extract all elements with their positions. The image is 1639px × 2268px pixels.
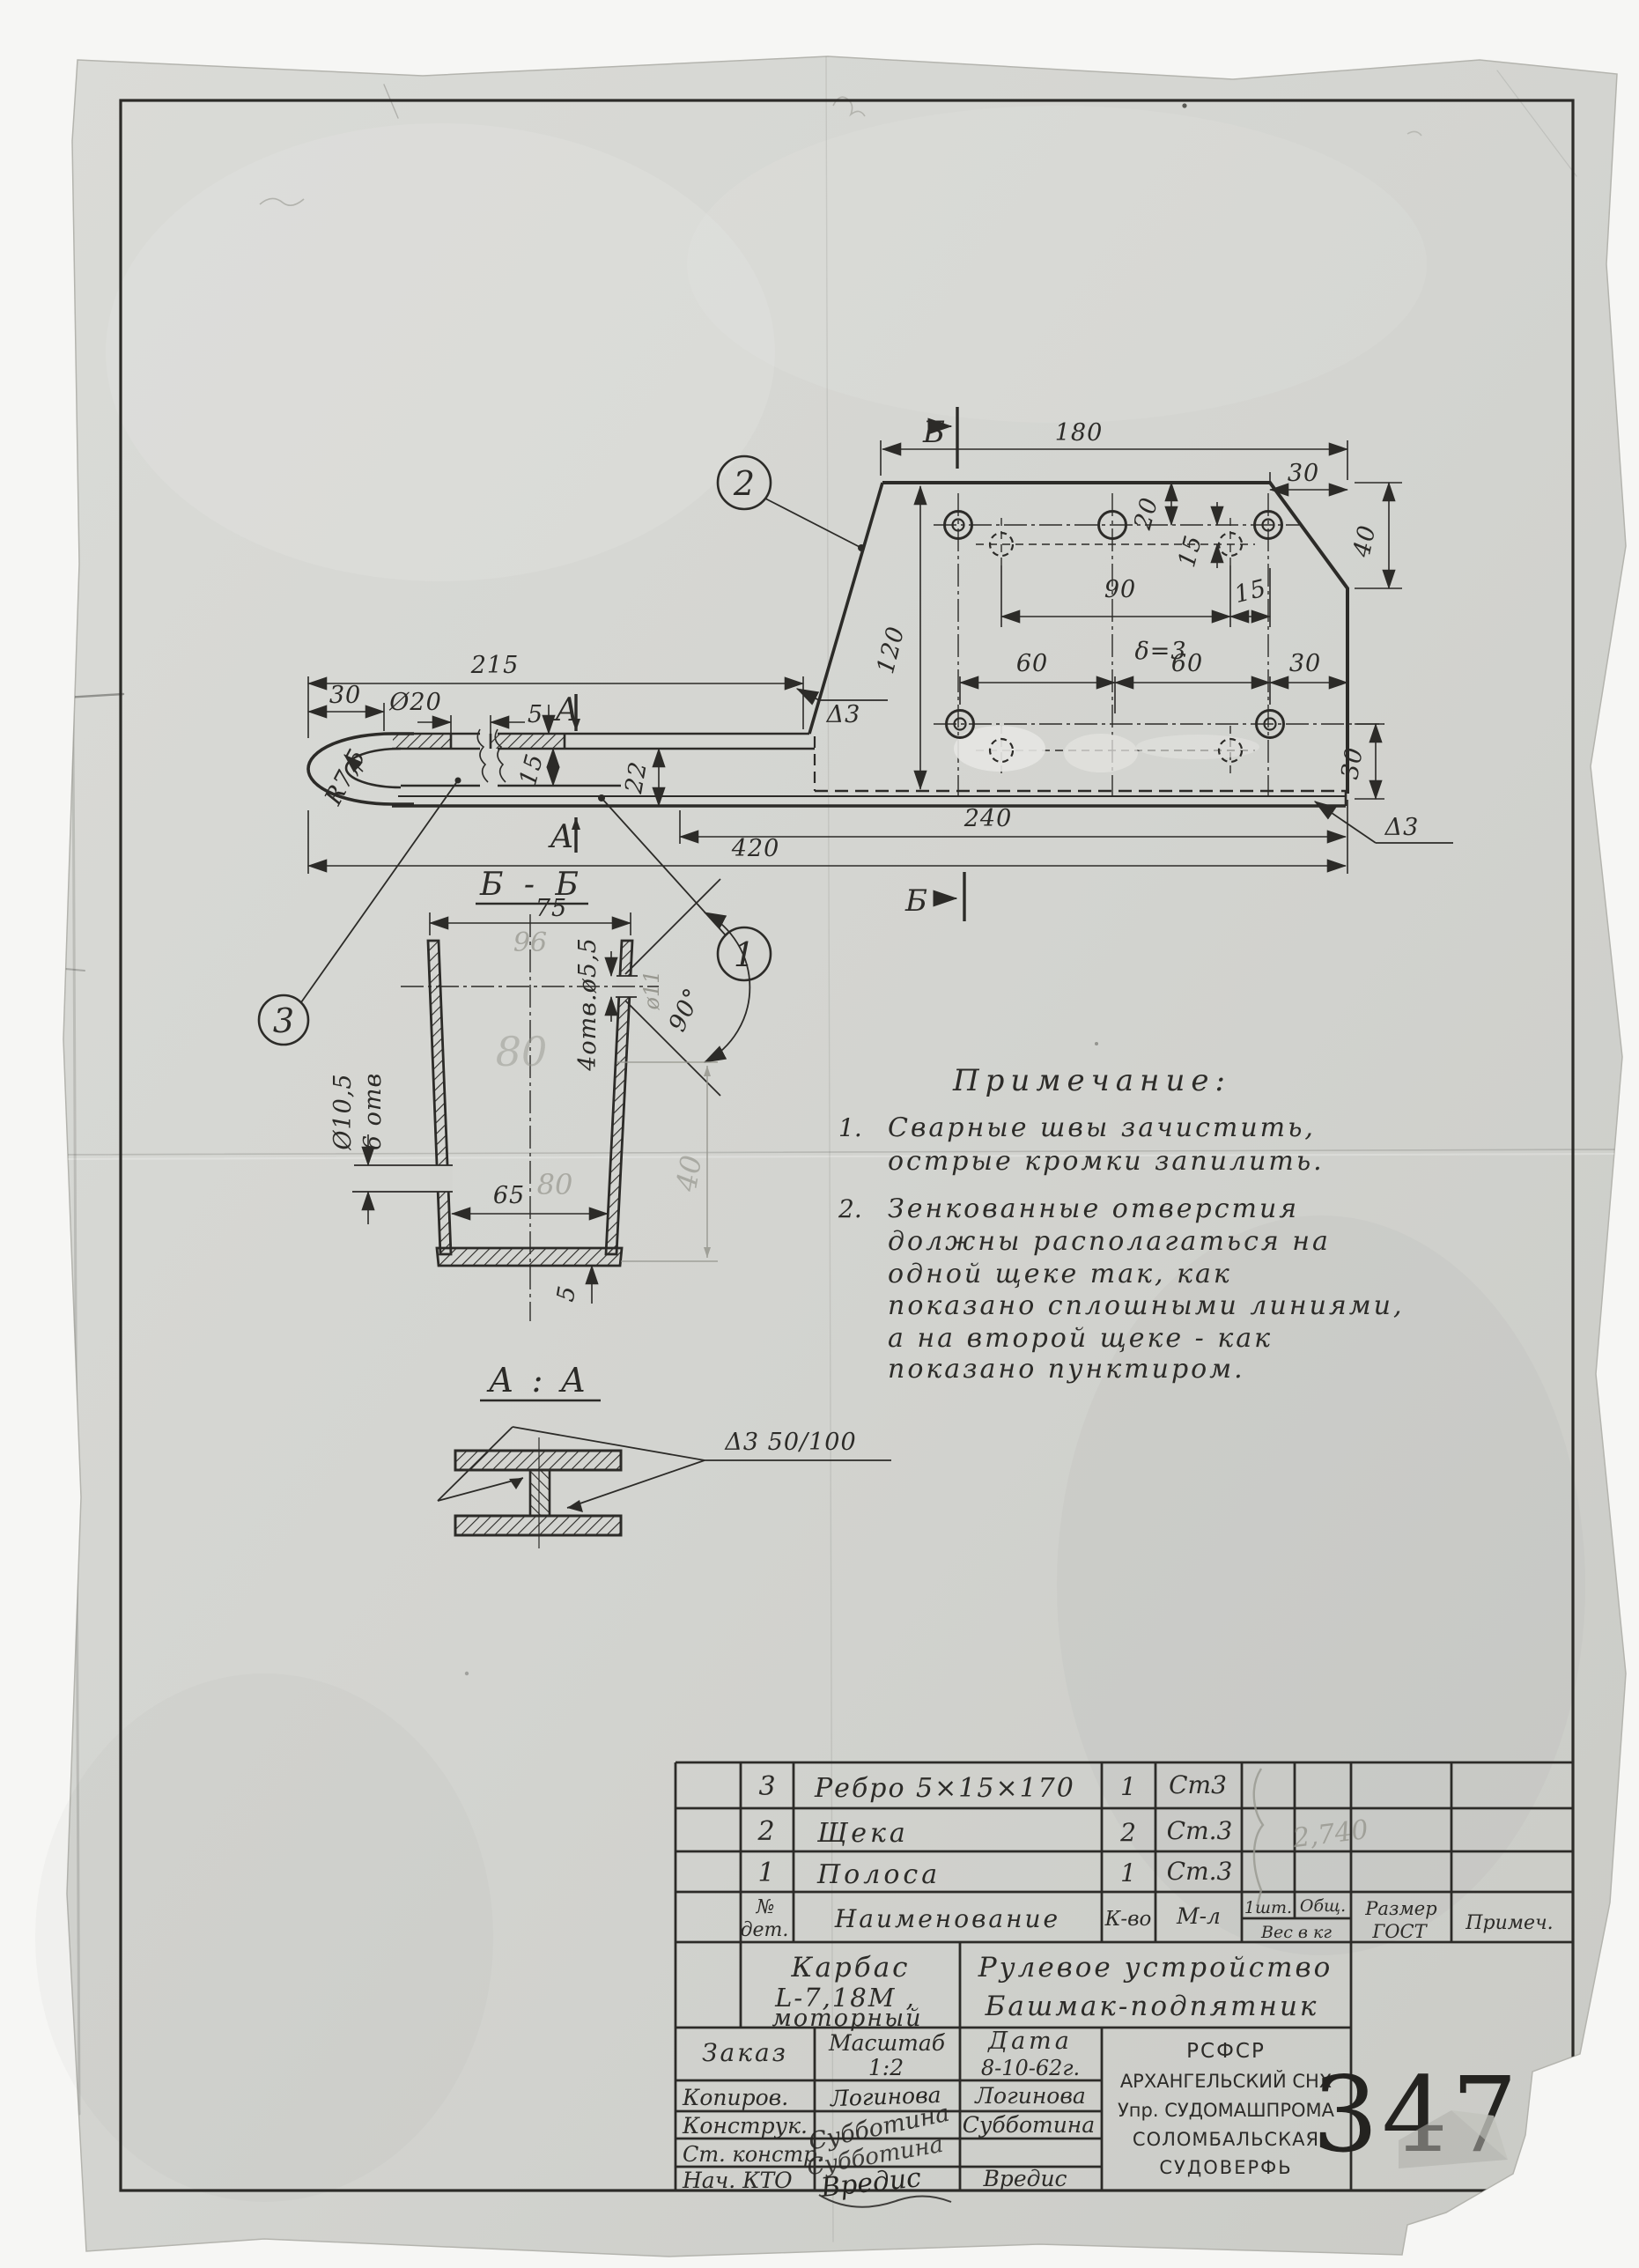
blueprint-svg: 180 Б Б 30 40 20 15 90 15 δ=3 120 60 60 …	[0, 0, 1639, 2268]
name-cell: Вредис	[982, 2166, 1067, 2191]
callout-3: 3	[273, 1001, 294, 1040]
svg-text:Копиров.: Копиров.	[682, 2085, 788, 2110]
pencil-note: 80	[496, 1028, 548, 1075]
svg-text:5: 5	[528, 701, 543, 728]
svg-text:Примеч.: Примеч.	[1465, 1912, 1553, 1934]
part-material: Ст.3	[1167, 1857, 1233, 1886]
svg-text:60: 60	[1171, 650, 1203, 677]
svg-text:240: 240	[963, 805, 1013, 832]
svg-text:М-л: М-л	[1176, 1903, 1221, 1929]
dim-label: 180	[1055, 419, 1104, 447]
svg-text:Дата: Дата	[987, 2028, 1073, 2055]
svg-text:6 отв: 6 отв	[359, 1073, 387, 1150]
part-name: Ребро 5×15×170	[814, 1773, 1075, 1804]
svg-text:Зенкованные отверстия: Зенкованные отверстия	[888, 1193, 1299, 1224]
name-cell: Логинова	[973, 2083, 1086, 2109]
weld-note: Δ3 50/100	[724, 1429, 856, 1456]
svg-text:Ø20: Ø20	[388, 689, 442, 716]
notes-title: Примечание:	[952, 1063, 1231, 1098]
svg-text:Масштаб: Масштаб	[828, 2030, 946, 2056]
part-name: Полоса	[816, 1859, 941, 1890]
svg-text:Размер: Размер	[1364, 1898, 1436, 1919]
section-letter-b-bottom: Б	[904, 883, 927, 919]
org-line: СОЛОМБАЛЬСКАЯ	[1133, 2129, 1319, 2150]
org-line: РСФСР	[1186, 2040, 1266, 2063]
svg-text:Конструк.: Конструк.	[682, 2113, 808, 2139]
section-bb-title: Б - Б	[479, 867, 584, 903]
part-qty: 2	[1119, 1818, 1136, 1847]
section-letter-b-top: Б	[922, 415, 945, 450]
weld-symbol: Δ3	[1384, 814, 1420, 841]
svg-text:Наименование: Наименование	[834, 1904, 1060, 1933]
section-letter-a-bottom: А	[547, 819, 573, 855]
svg-text:30: 30	[1289, 650, 1321, 677]
svg-text:75: 75	[535, 895, 567, 922]
weld-symbol: Δ3	[826, 701, 861, 728]
svg-text:одной щеке так, как: одной щеке так, как	[888, 1259, 1232, 1289]
pencil-note: ø11	[639, 971, 664, 1011]
svg-text:К-во: К-во	[1104, 1908, 1152, 1931]
part-qty: 1	[1120, 1772, 1136, 1801]
svg-text:Заказ: Заказ	[702, 2038, 788, 2067]
name-cell: Субботина	[963, 2112, 1095, 2138]
svg-text:дет.: дет.	[741, 1919, 789, 1941]
svg-text:№: №	[756, 1896, 775, 1918]
part-no: 2	[757, 1816, 774, 1847]
pencil-note: 40	[669, 1153, 709, 1195]
svg-text:30: 30	[1336, 745, 1369, 781]
svg-text:8-10-62г.: 8-10-62г.	[981, 2056, 1080, 2080]
product-line: Карбас	[790, 1952, 910, 1984]
note-1-num: 1.	[838, 1113, 862, 1142]
org-line: СУДОВЕРФЬ	[1159, 2157, 1292, 2178]
svg-text:65: 65	[493, 1182, 525, 1209]
svg-text:а на второй щеке - как: а на второй щеке - как	[888, 1323, 1273, 1354]
svg-text:показано пунктиром.: показано пунктиром.	[888, 1354, 1245, 1385]
svg-text:Общ.: Общ.	[1300, 1896, 1346, 1916]
svg-text:ГОСТ: ГОСТ	[1371, 1921, 1428, 1942]
org-line: АРХАНГЕЛЬСКИЙ СНХ	[1120, 2070, 1332, 2092]
svg-text:должны располагаться на: должны располагаться на	[888, 1226, 1331, 1257]
svg-text:420: 420	[731, 835, 780, 862]
svg-text:60: 60	[1016, 650, 1048, 677]
scanned-blueprint-sheet: 180 Б Б 30 40 20 15 90 15 δ=3 120 60 60 …	[0, 0, 1639, 2268]
svg-text:острые кромки запилить.: острые кромки запилить.	[888, 1146, 1325, 1177]
svg-text:Вес в кг: Вес в кг	[1260, 1923, 1332, 1942]
product-line: моторный	[772, 2005, 923, 2032]
svg-text:Ø10,5: Ø10,5	[329, 1073, 357, 1150]
org-line: Упр. СУДОМАШПРОМА	[1118, 2100, 1335, 2121]
svg-text:показано сплошными линиями,: показано сплошными линиями,	[888, 1290, 1405, 1321]
part-name: Щека	[816, 1818, 909, 1849]
svg-text:4отв.ø5,5: 4отв.ø5,5	[574, 937, 602, 1072]
part-qty: 1	[1120, 1858, 1136, 1888]
pencil-note: 96	[513, 927, 547, 958]
part-material: Ст3	[1169, 1770, 1227, 1799]
svg-text:30: 30	[1288, 460, 1319, 487]
section-letter-a-top: А	[552, 692, 579, 728]
svg-text:1шт.: 1шт.	[1244, 1898, 1292, 1917]
svg-text:Ст. констр.: Ст. констр.	[683, 2142, 823, 2167]
svg-text:1:2: 1:2	[868, 2055, 904, 2080]
note-2-num: 2.	[838, 1194, 862, 1223]
drawing-title: Рулевое устройство	[978, 1952, 1333, 1984]
part-material: Ст.3	[1167, 1816, 1233, 1845]
svg-text:Сварные швы зачистить,: Сварные швы зачистить,	[888, 1112, 1316, 1143]
svg-text:Нач. КТО: Нач. КТО	[682, 2168, 793, 2193]
svg-text:30: 30	[329, 682, 361, 709]
svg-text:22: 22	[620, 759, 653, 796]
part-no: 1	[757, 1858, 774, 1888]
svg-text:215: 215	[470, 652, 520, 679]
part-no: 3	[758, 1771, 775, 1802]
section-aa-title: А : А	[486, 1361, 590, 1400]
drawing-title: Башмак-подпятник	[985, 1991, 1319, 2022]
svg-text:90: 90	[1104, 576, 1136, 603]
pencil-note: 80	[537, 1168, 573, 1201]
callout-2: 2	[733, 464, 755, 503]
